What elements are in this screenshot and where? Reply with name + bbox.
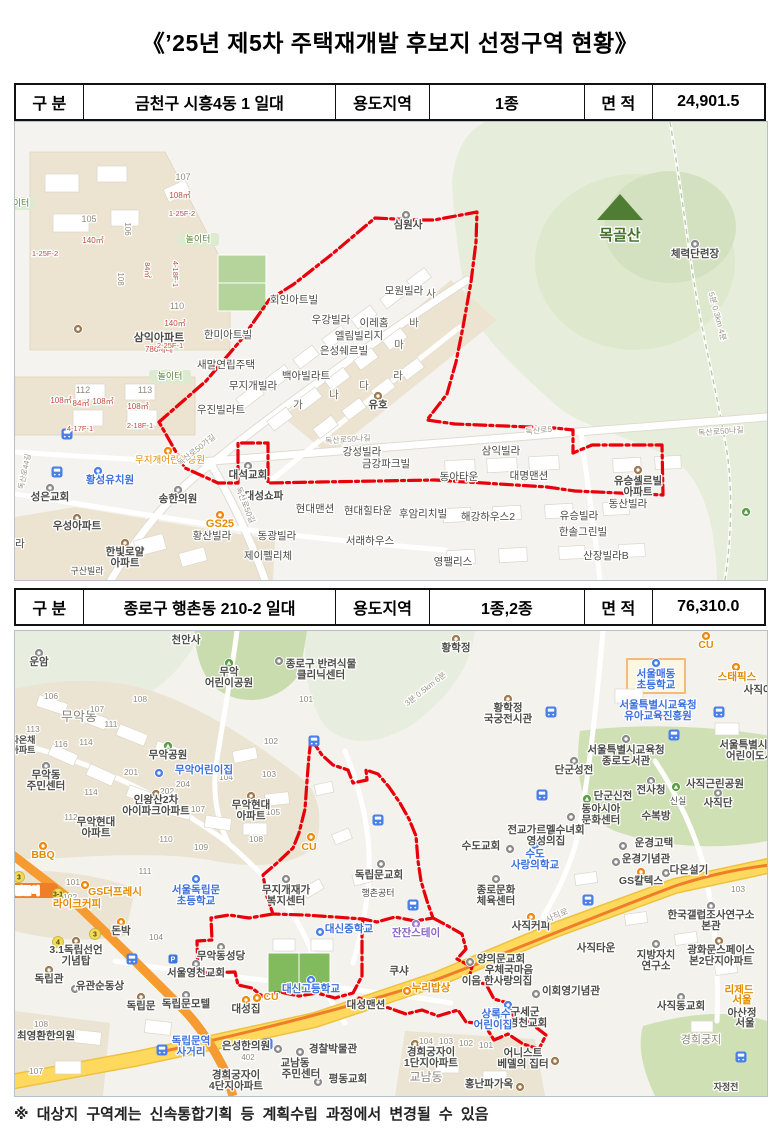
svg-text:3: 3 [93, 932, 97, 939]
map-label: 103 [262, 769, 276, 779]
map-label: 교남동 [409, 1070, 442, 1084]
building [74, 1030, 101, 1046]
map-label: 대성맨션 [347, 998, 386, 1011]
gray-icon [652, 940, 661, 949]
map-label: 무지개빌라 [229, 380, 278, 392]
building [311, 939, 333, 951]
map-label: 복지센터 [267, 894, 306, 907]
map-label: 단군성전 [555, 763, 594, 776]
gray-icon [492, 875, 501, 884]
map-label: 서울 [735, 1016, 755, 1029]
map-label: 2-25F-1 [157, 341, 183, 350]
map-label: 연구소 [642, 959, 671, 972]
map-label: 사거리 [177, 1045, 206, 1058]
map-label: 엘림빌리지 [335, 329, 383, 342]
building [499, 547, 528, 562]
map-label: 놀이터 [186, 234, 211, 244]
map-label: CU [263, 991, 278, 1003]
map-label: 108 [34, 1019, 48, 1029]
map-label: 심원사 [394, 218, 423, 231]
site-table-geumcheon: 구 분 금천구 시흥4동 1 일대 용도지역 1종 면 적 24,901.5 [14, 83, 766, 121]
map-label: 대신중학교 [325, 922, 374, 935]
map-label: 4단지아파트 [209, 1079, 263, 1092]
map-label: 새말연립주택 [197, 358, 255, 371]
map-label: BBQ [31, 849, 54, 861]
map-label: 서래하우스 [346, 534, 395, 547]
table-header-area: 면 적 [585, 85, 653, 119]
map-label: 대신고등학교 [282, 982, 340, 995]
map-label: 현대힐타운 [344, 504, 393, 517]
brown-icon [516, 1083, 525, 1092]
map-label: 140㎡ [82, 236, 103, 245]
table-header-gubun: 구 분 [16, 590, 84, 624]
map-label: 어린이공원 [205, 676, 253, 689]
brown-icon [634, 466, 643, 475]
gray-icon [466, 958, 475, 967]
brown-icon [551, 1057, 560, 1066]
orange-icon [403, 987, 412, 996]
map-label: 홍난파가옥 [465, 1077, 514, 1090]
map-label: 라 [15, 538, 25, 550]
map-label: 주민센터 [27, 779, 66, 792]
map-label: 대성집 [232, 1002, 261, 1015]
map-label: 108㎡ [92, 397, 113, 406]
map-label: 은성한의원 [222, 1039, 270, 1052]
map-label: 회인아트빌 [270, 294, 318, 306]
map-label: 마 [394, 339, 404, 351]
map-label: 체력단련장 [671, 247, 720, 260]
document-page: 《’25년 제5차 주택재개발 후보지 선정구역 현황》 구 분 금천구 시흥4… [0, 0, 780, 1141]
map-label: 잔잔스테이 [392, 926, 440, 939]
map-label: 송한의원 [159, 492, 198, 505]
map-label: 초등학교 [637, 678, 676, 691]
map-label: 무악공원 [149, 748, 188, 761]
map-label: 108 [249, 834, 263, 844]
map-label: 104 [419, 1036, 433, 1046]
map-label: 다 [359, 380, 369, 392]
map-label: 아파트 [624, 485, 653, 498]
map-label: 라이크커피 [53, 897, 101, 910]
bus-icon [714, 707, 725, 718]
map-label: 쿠샤 [389, 964, 409, 977]
map-label: 106 [44, 691, 58, 701]
map-label: 은성쉐르빌 [320, 345, 368, 357]
map-label: 성은교회 [31, 490, 70, 503]
map-label: 단군신전 [594, 789, 633, 802]
map-label: 초등학교 [177, 894, 216, 907]
map-label: 유호 [368, 398, 388, 411]
map-label: 108㎡ [169, 191, 190, 200]
map-label: 402 [241, 1053, 255, 1062]
map-label: 유관순동상 [76, 979, 125, 992]
map-label: 본2단지아파트 [689, 954, 753, 967]
map-label: 우진빌라트 [197, 404, 246, 416]
map-label: 1단지아파트 [404, 1056, 458, 1069]
gray-icon [282, 875, 291, 884]
map-label: 107 [175, 172, 190, 182]
svg-text:P: P [171, 957, 176, 964]
map-label: 모원빌라 [385, 285, 424, 297]
map-label: 산장빌라B [583, 550, 629, 562]
map-label: 동광빌라 [258, 530, 297, 542]
map-label: 황성유치원 [86, 473, 134, 486]
map-label: 101 [299, 694, 313, 704]
map-label: 무악동성당 [197, 949, 246, 962]
map-label: 바 [409, 317, 419, 329]
table-value-location: 종로구 행촌동 210-2 일대 [84, 590, 337, 624]
map-label: 111 [139, 866, 152, 876]
map-label: 이터 [15, 198, 29, 208]
map-label: 아이파크아파트 [122, 804, 190, 817]
map-label: 4-18F-1 [171, 261, 180, 287]
map-label: 이회영기념관 [542, 984, 600, 997]
map-label: 110 [170, 301, 184, 311]
building [691, 1021, 713, 1032]
exit-icon: 3 [90, 929, 101, 940]
map-label: 84㎡ [143, 262, 152, 278]
gray-icon [506, 845, 515, 854]
map-label: 사랑의학교 [511, 858, 560, 871]
bus-icon [127, 954, 138, 965]
map-label: 사직커피 [512, 919, 551, 932]
map-label: 사직아파 [744, 683, 767, 696]
map-label: 해강하우스2 [461, 510, 515, 523]
map-label: 구산빌라 [70, 566, 104, 576]
gray-icon [377, 860, 386, 869]
map-label: 서울영천교회 [167, 966, 225, 979]
map-label: 삼익빌라 [482, 445, 521, 457]
map-label: 주민센터 [282, 1067, 321, 1080]
building [144, 1020, 171, 1036]
bus-icon [736, 1052, 747, 1063]
map-label: 천안사 [172, 633, 201, 646]
map-label: 베델의 집터 [497, 1057, 548, 1070]
map-label: 114 [84, 787, 98, 797]
map-label: 사직근린공원 [686, 777, 744, 790]
map-label: 운경기념관 [622, 852, 671, 865]
map-label: 108 [133, 694, 147, 704]
map-label: 신실 [670, 796, 687, 806]
map-label: 클리닉센터 [297, 668, 345, 681]
building [55, 1061, 81, 1074]
map-label: 영천교회 [509, 1016, 548, 1029]
blue-icon [652, 659, 661, 668]
map-label: 금강파크빌 [362, 458, 410, 470]
map-label: 이레홈 [360, 316, 389, 329]
map-label: 대명맨션 [510, 470, 549, 482]
green-icon [742, 508, 751, 517]
map-label: 제이펠리체 [244, 550, 292, 562]
map-label: 대성쇼파 [245, 489, 284, 502]
map-label: 현대맨션 [296, 503, 335, 515]
map-label: 우강빌라 [312, 314, 351, 326]
map-label: 운경고택 [635, 836, 674, 849]
bus-icon [583, 895, 594, 906]
map-label: 영성의집 [527, 834, 566, 847]
map-label: 영팰리스 [434, 556, 473, 568]
table-value-area: 24,901.5 [653, 85, 764, 119]
map-label: 어린이집 [474, 1018, 513, 1031]
map-label: 112 [76, 385, 90, 395]
bus-icon [546, 707, 557, 718]
table-value-location: 금천구 시흥4동 1 일대 [84, 85, 337, 119]
brown-icon [74, 325, 83, 334]
map-label: 독립문모텔 [162, 997, 211, 1010]
blue-icon [155, 769, 164, 778]
gray-icon [622, 735, 631, 744]
map-label: 목골산 [599, 227, 641, 244]
map-label: 경찰박물관 [309, 1042, 358, 1055]
map-label: 대석교회 [229, 468, 268, 481]
map-label: 4-17F-1 [67, 424, 93, 433]
map-label: 204 [176, 779, 190, 789]
map-label: 사 [426, 288, 436, 300]
map-label: 116 [54, 739, 68, 749]
map-label: 84㎡ [73, 399, 90, 408]
building [529, 455, 560, 471]
map-label: 나 [329, 389, 339, 401]
map-label: 110 [159, 834, 173, 844]
footnote: ※ 대상지 구역계는 신속통합기획 등 계획수립 과정에서 변경될 수 있음 [14, 1103, 489, 1124]
map-label: 103 [731, 884, 745, 894]
map-label: 아파트 [82, 826, 111, 839]
map-label: 놀이터 [158, 371, 183, 381]
map-label: 본관 [701, 919, 721, 932]
map-label: 109 [194, 842, 208, 852]
map-label: 2-18F-1 [127, 421, 153, 430]
map-label: 111 [105, 719, 118, 729]
map-label: CU [301, 841, 316, 853]
map-label: 운암 [29, 656, 49, 668]
map-label: GS더프레시 [88, 885, 142, 898]
map-label: 아파트 [15, 744, 36, 755]
map-label: 전사청 [637, 783, 666, 796]
map-label: 106 [123, 222, 132, 236]
map-label: 문화센터 [582, 813, 621, 826]
map-label: 107 [29, 1066, 43, 1076]
map-label: GS칼텍스 [619, 874, 663, 887]
building [655, 455, 682, 469]
gray-icon [532, 990, 541, 999]
gray-icon [567, 813, 576, 822]
map-label: 국궁전시관 [484, 712, 533, 725]
building [45, 174, 79, 192]
bus-icon [408, 900, 419, 911]
map-label: 113 [26, 724, 40, 734]
bus-icon [157, 1045, 168, 1056]
bus-icon [537, 790, 548, 801]
map-label: 서울 [732, 993, 752, 1006]
map-label: 한솔그린빌 [559, 526, 607, 538]
table-value-zoning: 1종,2종 [430, 590, 585, 624]
map-label: 102 [459, 1038, 473, 1048]
map-label: GS25 [206, 518, 234, 530]
building [97, 166, 127, 182]
table-header-zoning: 용도지역 [336, 85, 430, 119]
map-label: 다온설기 [670, 863, 709, 876]
bus-icon [373, 815, 384, 826]
map-label: 다온채 [15, 734, 35, 745]
map-label: 아파트 [237, 809, 266, 822]
map-label: 105 [81, 214, 96, 224]
map-label: 어린이도서관 [726, 749, 767, 762]
map-geumcheon-siheung: 회인아트빌한미아트빌모원빌라우강빌라이레홈엘림빌리지은성쉐르빌새말연립주택백아빌… [14, 121, 768, 581]
map-label: 사직타운 [577, 941, 616, 954]
map-label: 종로도서관 [602, 754, 651, 767]
map-label: 102 [264, 736, 278, 746]
map-label: 황학정 [442, 641, 471, 654]
map-label: 최영환한의원 [17, 1029, 75, 1042]
building [273, 939, 295, 951]
map-label: 사직동교회 [657, 999, 705, 1012]
svg-text:3: 3 [17, 875, 21, 882]
map-label: 백아빌라트 [282, 370, 331, 382]
table-value-area: 76,310.0 [653, 590, 764, 624]
map-label: 황산빌라 [193, 530, 232, 542]
map-label: 돈박 [111, 924, 131, 937]
orange-icon [253, 994, 262, 1003]
map-label: CU [698, 639, 713, 651]
map-label: 라 [393, 370, 403, 382]
map-label: 수도교회 [462, 839, 501, 852]
map-label: 유아교육진흥원 [624, 709, 692, 722]
map-label: 동산빌라 [609, 498, 648, 510]
building [715, 723, 739, 735]
gray-icon [296, 1048, 305, 1057]
map-label: 101 [479, 1040, 493, 1050]
p-icon: P [169, 955, 178, 964]
map-label: 108㎡ [127, 402, 148, 411]
bus-icon [52, 467, 63, 478]
table-header-zoning: 용도지역 [336, 590, 430, 624]
map-label: 독립문 [127, 999, 156, 1012]
map-label: 1-25F-2 [32, 249, 58, 258]
map-label: 기념탑 [62, 954, 91, 967]
map-label: 무악어린이집 [175, 763, 233, 776]
blue-icon [192, 875, 201, 884]
map-label: 체육센터 [477, 894, 516, 907]
map-label: 201 [124, 767, 138, 777]
map-label: 자정전 [714, 1081, 739, 1092]
map-label: 행촌공터 [361, 887, 394, 898]
map-label: 독립문교회 [355, 868, 403, 881]
map-label: 한미아트빌 [204, 329, 252, 341]
map-label: 아파트 [111, 556, 140, 569]
map-label: 누리밥상 [412, 981, 451, 994]
map-label: 140㎡ [164, 319, 185, 328]
bus-icon [669, 730, 680, 741]
blue-icon [316, 928, 325, 937]
map-label: 104 [149, 932, 163, 942]
gray-icon [612, 858, 621, 867]
map-label: 113 [138, 385, 152, 395]
map-label: 107 [191, 804, 205, 814]
map-label: 사직단 [704, 796, 733, 809]
map-label: 경희궁지 [681, 1033, 721, 1046]
map-label: 후암리치빌 [399, 508, 447, 520]
map-label: 우성아파트 [53, 519, 102, 532]
map-label: 독립관 [35, 972, 64, 985]
gray-icon [619, 842, 628, 851]
table-header-gubun: 구 분 [16, 85, 84, 119]
map-label: 스태픽스 [718, 670, 757, 683]
gray-icon [275, 657, 284, 666]
map-label: 유승빌라 [560, 510, 599, 522]
map-label: 동아타운 [440, 471, 479, 483]
map-label: 101 [66, 877, 80, 887]
green-icon [672, 783, 681, 792]
map-label: 1-25F-2 [169, 209, 195, 218]
map-label: 가 [293, 399, 303, 411]
gray-icon [274, 1045, 283, 1054]
map-label: 독립문역 [15, 885, 40, 896]
map-label: 108 [116, 272, 125, 286]
map-label: 114 [79, 737, 93, 747]
building [559, 545, 586, 559]
table-header-area: 면 적 [585, 590, 653, 624]
map-label: 수복방 [642, 809, 671, 822]
map-label: 강성빌라 [343, 446, 382, 458]
map-label: 108㎡ [50, 396, 71, 405]
map-jongno-haengchon: 3-1343P 천안사운암무악어린이공원종로구 반려식물클리닉센터무악동1061… [14, 630, 768, 1097]
page-title: 《’25년 제5차 주택재개발 후보지 선정구역 현황》 [0, 24, 780, 58]
map-label: 평동교회 [329, 1072, 368, 1085]
map-label: 107 [90, 704, 104, 714]
exit-icon: 3 [15, 872, 25, 883]
site-table-jongno: 구 분 종로구 행촌동 210-2 일대 용도지역 1종,2종 면 적 76,3… [14, 588, 766, 626]
map-label: 103 [439, 1036, 453, 1046]
table-value-zoning: 1종 [430, 85, 585, 119]
bus-icon [309, 736, 320, 747]
map-label: 이음 한사랑의집 [462, 974, 533, 987]
